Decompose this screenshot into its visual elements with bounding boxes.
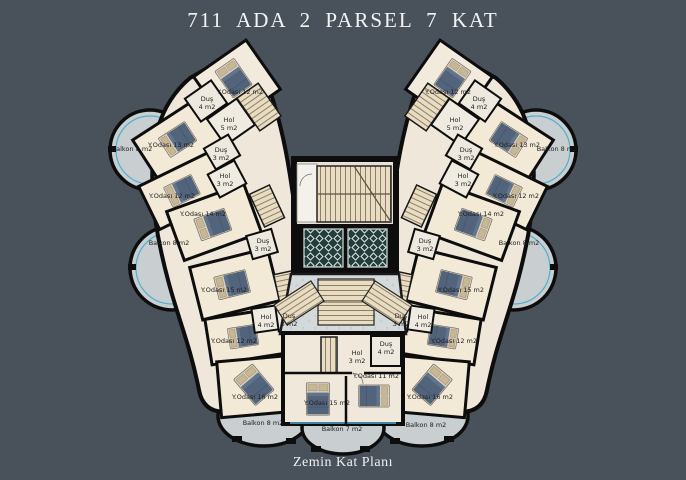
floor-plan-image: 711 ADA 2 PARSEL 7 KAT Zemin Kat Planı Y…: [0, 0, 686, 480]
plan-title: 711 ADA 2 PARSEL 7 KAT: [0, 8, 686, 33]
shower-4m2-center: [371, 336, 401, 366]
floor-plan-drawing: [0, 0, 686, 480]
elevator-right: [348, 229, 387, 267]
elevator-left: [304, 229, 343, 267]
plan-caption: Zemin Kat Planı: [0, 455, 686, 471]
bed-icon: [306, 383, 329, 415]
bed-icon: [359, 385, 390, 407]
central-core: [291, 156, 399, 274]
bottom-stair: [321, 337, 337, 373]
central-hall: [274, 274, 412, 334]
core-stair: [317, 166, 391, 222]
